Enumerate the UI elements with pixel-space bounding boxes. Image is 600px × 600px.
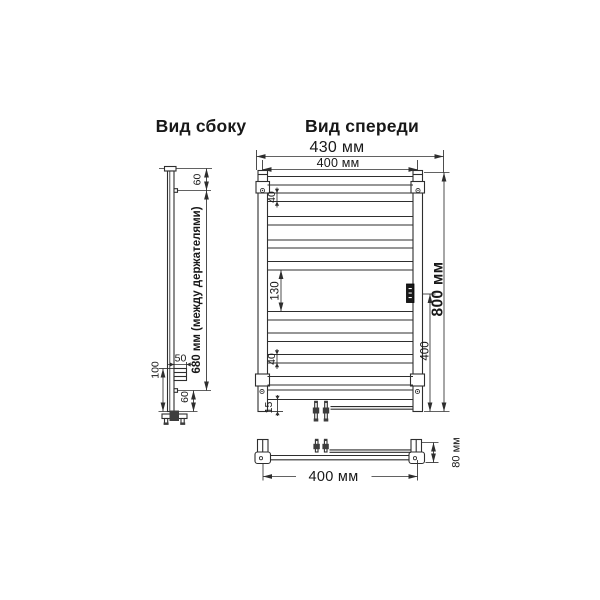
dim-bottom-offset: 60 — [179, 391, 194, 412]
dim-bottom-width: 400 мм — [263, 460, 418, 485]
side-view: 60 680 мм (между держателями) 50 100 — [150, 167, 213, 425]
holder-arm — [174, 369, 187, 381]
wall-bracket — [411, 374, 425, 386]
side-view-title: Вид сбоку — [156, 116, 247, 136]
valve-icon-bottom — [313, 439, 328, 452]
dim-top-offset: 60 — [178, 169, 211, 191]
bottom-view: 400 мм 80 мм — [255, 437, 463, 485]
brand-badge — [407, 284, 415, 303]
post-side — [168, 171, 175, 412]
dim-overall-width-label: 430 мм — [310, 139, 365, 156]
dim-overall-height: 800 мм — [424, 173, 450, 412]
dim-bottom-width-label: 400 мм — [309, 469, 359, 485]
dim-rung-gap-bottom: 40 — [266, 349, 286, 369]
towel-rail-drawing: Вид сбоку Вид спереди 60 680 мм (между д… — [0, 0, 600, 600]
wall-bracket — [411, 182, 425, 194]
dim-between-holders-label: 680 мм (между держателями) — [191, 206, 203, 373]
front-view-title: Вид спереди — [305, 116, 419, 136]
dim-center-gap-label: 130 — [270, 281, 282, 300]
dim-holder-depth-label: 50 — [175, 353, 187, 365]
dim-top-offset-label: 60 — [192, 174, 204, 186]
dim-rung-gap-bottom-label: 40 — [266, 353, 278, 365]
dim-rung-gap-top-label: 40 — [266, 191, 278, 203]
dim-lower-half-label: 400 — [420, 341, 432, 360]
dim-rail-width-label: 400 мм — [317, 156, 360, 170]
front-view: 430 мм 400 мм — [256, 139, 450, 422]
wall-bracket — [256, 374, 270, 386]
dim-depth: 80 мм — [422, 437, 463, 467]
technical-drawing: Вид сбоку Вид спереди 60 680 мм (между д… — [0, 0, 600, 600]
dim-bottom-height-label: 100 — [150, 361, 162, 379]
post-cap-side — [165, 167, 177, 172]
dim-overall-height-label: 800 мм — [430, 262, 447, 317]
dim-rail-width: 400 мм — [263, 156, 418, 170]
dim-bottom-offset-label: 60 — [179, 391, 191, 403]
dim-depth-label: 80 мм — [451, 437, 463, 467]
holder-bottom — [174, 389, 178, 393]
valve-icon-front — [313, 401, 329, 422]
dim-center-gap: 130 — [268, 270, 288, 312]
valve-icon-side — [162, 411, 187, 425]
dim-bottom-margin-label: 15 — [263, 402, 275, 414]
holder-top — [174, 189, 178, 193]
rungs — [268, 177, 414, 400]
